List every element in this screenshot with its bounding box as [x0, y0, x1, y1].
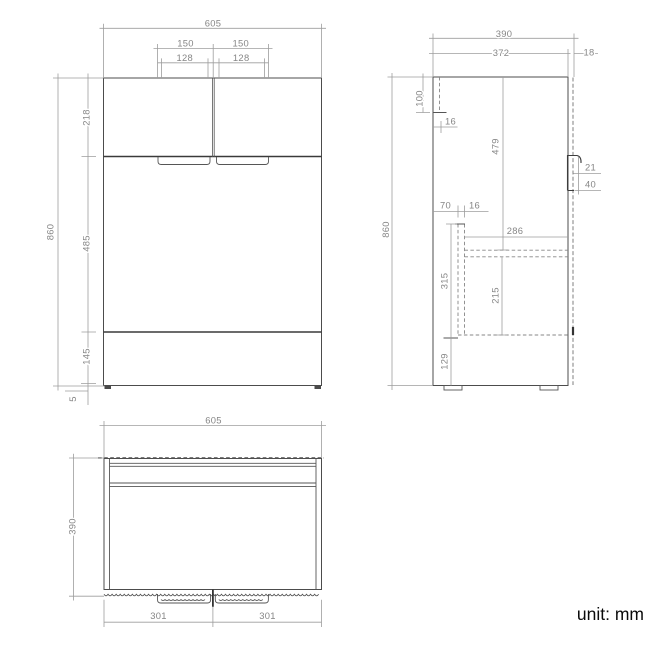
unit-label: unit: mm	[577, 604, 644, 624]
side-height-label: 860	[380, 221, 391, 238]
front-handle-left-inner-label: 128	[177, 52, 194, 63]
side-mount-rail-label: 100	[414, 90, 425, 107]
side-upper-door-label: 479	[490, 138, 501, 155]
front-door-center-gap	[212, 78, 214, 157]
front-foot-left	[105, 386, 112, 390]
side-handle-profile	[568, 156, 582, 191]
top-recess-flute-left	[161, 600, 205, 601]
front-view: 605 150 150 128 128 860 218 485 145 5	[45, 17, 327, 405]
front-height-label: 860	[45, 224, 56, 241]
side-foot-back	[444, 386, 462, 391]
top-internal-walls	[110, 459, 317, 590]
side-handle-inset-label: 21	[585, 161, 596, 172]
technical-drawing-page: 605 150 150 128 128 860 218 485 145 5 39…	[0, 0, 650, 650]
side-handle-height-label: 40	[585, 178, 596, 189]
top-view-body	[98, 458, 324, 607]
side-shelf-depth-label: 286	[507, 225, 524, 236]
side-dimension-lines	[388, 34, 602, 391]
front-handle-right	[217, 157, 269, 165]
side-bottom-rail-offset-label: 70	[440, 199, 451, 210]
front-dimension-lines	[53, 24, 326, 405]
front-door-split-lines	[104, 157, 322, 333]
side-internal-solid-lines	[433, 113, 465, 339]
side-lower-section-label: 315	[439, 273, 450, 290]
top-door-right-width-label: 301	[259, 610, 276, 621]
top-width-label: 605	[205, 414, 222, 425]
side-drawer-inner-label: 215	[490, 287, 501, 304]
front-handle-right-inner-label: 128	[233, 52, 250, 63]
front-handle-left-outer-label: 150	[177, 37, 194, 48]
front-section-top-label: 218	[81, 109, 92, 126]
top-fluted-door-edge	[104, 594, 319, 596]
front-width-label: 605	[205, 17, 222, 28]
front-section-middle-label: 485	[81, 235, 92, 252]
front-foot-right	[315, 386, 322, 390]
front-bottom-gap-label: 5	[67, 396, 78, 402]
front-handle-left	[158, 157, 210, 165]
side-plinth-label: 129	[439, 353, 450, 370]
side-front-panel-label: 18	[584, 46, 595, 57]
front-section-bottom-label: 145	[81, 348, 92, 365]
side-depth-label: 390	[496, 28, 513, 39]
side-carcass-depth-label: 372	[493, 47, 510, 58]
side-view: 390 372 18 860 100 16 479 21 40 70 16 28…	[380, 28, 601, 390]
side-panel-thickness-label: 16	[469, 199, 480, 210]
top-door-left-width-label: 301	[150, 610, 167, 621]
top-view: 605 390 301 301	[67, 414, 327, 627]
side-hidden-internals	[440, 77, 569, 335]
top-recess-flute-right	[219, 600, 263, 601]
front-view-body	[104, 78, 322, 389]
top-depth-label: 390	[67, 518, 78, 535]
side-foot-front	[540, 386, 558, 391]
front-handle-right-outer-label: 150	[233, 37, 250, 48]
side-back-panel-label: 16	[445, 115, 456, 126]
top-carcass	[104, 459, 322, 590]
front-view-dimensions: 605 150 150 128 128 860 218 485 145 5	[45, 17, 327, 405]
vanity-cabinet-drawing: 605 150 150 128 128 860 218 485 145 5 39…	[0, 0, 650, 650]
top-dimension-lines	[69, 421, 326, 627]
